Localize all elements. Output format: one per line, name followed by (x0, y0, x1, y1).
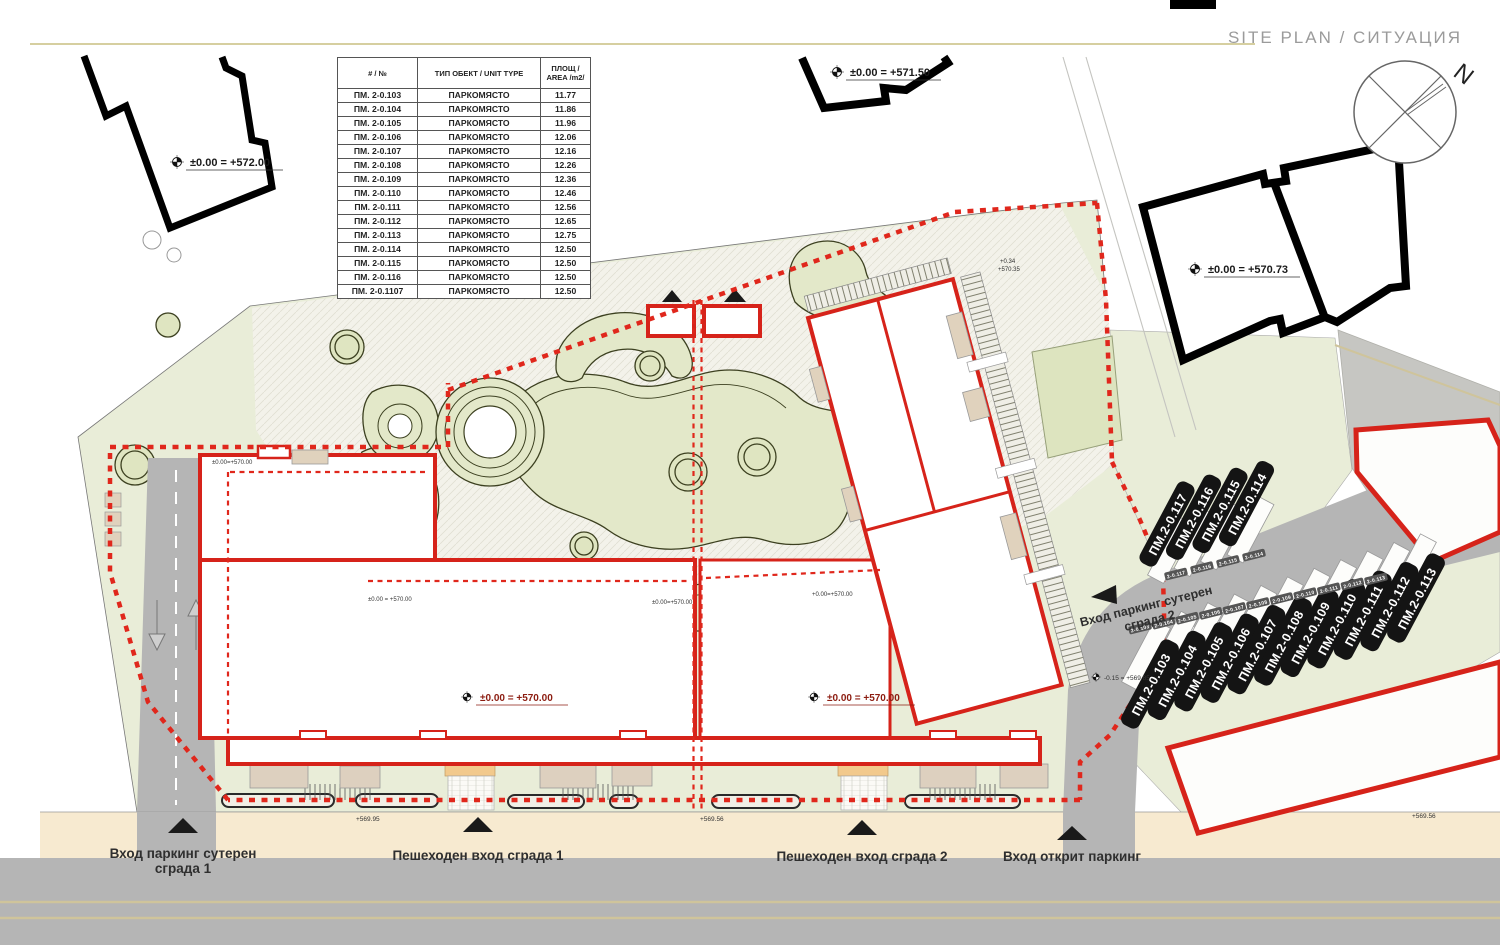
table-cell: ПАРКОМЯСТО (418, 173, 541, 187)
building-1-north-wing (200, 455, 435, 560)
ped2-label: Пешеходен вход сграда 2 (776, 849, 947, 864)
page-title: SITE PLAN / СИТУАЦИЯ (1228, 28, 1462, 48)
table-header-row: # / № ТИП ОБЕКТ / UNIT TYPE ПЛОЩ / AREA … (338, 58, 591, 89)
table-row: ПМ. 2-0.113ПАРКОМЯСТО12.75 (338, 229, 591, 243)
parking-area-table: # / № ТИП ОБЕКТ / UNIT TYPE ПЛОЩ / AREA … (337, 57, 591, 299)
garage1-label-line1: Вход паркинг сутерен (110, 846, 257, 861)
table-row: ПМ. 2-0.112ПАРКОМЯСТО12.65 (338, 215, 591, 229)
table-cell: 12.50 (541, 257, 591, 271)
elevation-b2-west: +0.00=+570.00 (812, 592, 853, 598)
title-rule (30, 43, 1255, 45)
table-row: ПМ. 2-0.110ПАРКОМЯСТО12.46 (338, 187, 591, 201)
crosswalk-2 (841, 776, 887, 810)
existing-building-top-edge (1170, 0, 1216, 9)
table-cell: ПАРКОМЯСТО (418, 187, 541, 201)
table-cell: 12.50 (541, 271, 591, 285)
table-cell: ПМ. 2-0.112 (338, 215, 418, 229)
table-cell: ПМ. 2-0.115 (338, 257, 418, 271)
table-cell: 12.75 (541, 229, 591, 243)
col-header-type: ТИП ОБЕКТ / UNIT TYPE (418, 58, 541, 89)
table-cell: ПМ. 2-0.111 (338, 201, 418, 215)
table-row: ПМ. 2-0.106ПАРКОМЯСТО12.06 (338, 131, 591, 145)
elevation-openlot: -0.15 = +569.85 (1104, 675, 1150, 682)
table-cell: 12.46 (541, 187, 591, 201)
table-cell: ПМ. 2-0.104 (338, 103, 418, 117)
table-row: ПМ. 2-0.103ПАРКОМЯСТО11.77 (338, 89, 591, 103)
table-cell: 11.77 (541, 89, 591, 103)
site-plan-drawing: ПМ.2-0.103ПМ.2-0.104ПМ.2-0.105ПМ.2-0.106… (0, 0, 1500, 945)
elevation-p034: +0.34 (1000, 259, 1016, 265)
table-cell: ПАРКОМЯСТО (418, 201, 541, 215)
table-cell: ПАРКОМЯСТО (418, 131, 541, 145)
table-cell: ПАРКОМЯСТО (418, 229, 541, 243)
table-cell: ПМ. 2-0.108 (338, 159, 418, 173)
table-cell: ПАРКОМЯСТО (418, 271, 541, 285)
table-cell: ПМ. 2-0.113 (338, 229, 418, 243)
table-cell: ПАРКОМЯСТО (418, 145, 541, 159)
table-cell: ПАРКОМЯСТО (418, 243, 541, 257)
core-terrace (292, 450, 328, 464)
table-cell: 12.26 (541, 159, 591, 173)
parking-table-body: ПМ. 2-0.103ПАРКОМЯСТО11.77ПМ. 2-0.104ПАР… (338, 89, 591, 299)
table-cell: ПМ. 2-0.116 (338, 271, 418, 285)
courtyard-2-block (700, 560, 890, 738)
elevation-57073: ±0.00 = +570.73 (1208, 264, 1288, 276)
table-cell: ПМ. 2-0.106 (338, 131, 418, 145)
corridor-head-west (648, 306, 694, 336)
elevation-b1-mid: ±0.00=+570.00 (652, 600, 693, 606)
table-row: ПМ. 2-0.108ПАРКОМЯСТО12.26 (338, 159, 591, 173)
table-cell: ПМ. 2-0.109 (338, 173, 418, 187)
elevation-court2: ±0.00 = +570.00 (827, 693, 900, 704)
table-cell: 12.50 (541, 243, 591, 257)
table-row: ПМ. 2-0.105ПАРКОМЯСТО11.96 (338, 117, 591, 131)
table-cell: ПМ. 2-0.103 (338, 89, 418, 103)
elevation-5715: ±0.00 = +571.50 (850, 67, 930, 79)
south-wing (228, 738, 1040, 764)
corridor-head-east (704, 306, 760, 336)
table-cell: ПАРКОМЯСТО (418, 257, 541, 271)
table-cell: ПАРКОМЯСТО (418, 285, 541, 299)
table-cell: ПМ. 2-0.1107 (338, 285, 418, 299)
site-plan-canvas: ПМ.2-0.103ПМ.2-0.104ПМ.2-0.105ПМ.2-0.106… (0, 0, 1500, 945)
table-cell: ПМ. 2-0.110 (338, 187, 418, 201)
table-row: ПМ. 2-0.115ПАРКОМЯСТО12.50 (338, 257, 591, 271)
garden-spiral-inner (388, 414, 412, 438)
table-cell: 12.65 (541, 215, 591, 229)
elevation-b1-corner: ±0.00=+570.00 (212, 460, 253, 466)
table-cell: ПАРКОМЯСТО (418, 103, 541, 117)
table-cell: 12.50 (541, 285, 591, 299)
table-cell: ПАРКОМЯСТО (418, 215, 541, 229)
table-row: ПМ. 2-0.107ПАРКОМЯСТО12.16 (338, 145, 591, 159)
elevation-572: ±0.00 = +572.00 (190, 157, 270, 169)
table-cell: 11.96 (541, 117, 591, 131)
west-terrace-pavers (105, 493, 121, 546)
table-cell: ПАРКОМЯСТО (418, 159, 541, 173)
open-parking-label: Вход открит паркинг (1003, 849, 1141, 864)
sidewalk (40, 812, 1500, 858)
elevation-57035: +570.35 (998, 267, 1021, 273)
north-letter: N (1448, 58, 1478, 90)
table-row: ПМ. 2-0.109ПАРКОМЯСТО12.36 (338, 173, 591, 187)
table-cell: ПМ. 2-0.107 (338, 145, 418, 159)
table-row: ПМ. 2-0.1107ПАРКОМЯСТО12.50 (338, 285, 591, 299)
table-row: ПМ. 2-0.114ПАРКОМЯСТО12.50 (338, 243, 591, 257)
garage1-label-line2: сграда 1 (155, 861, 212, 876)
table-cell: 12.56 (541, 201, 591, 215)
crosswalk-1 (448, 776, 494, 810)
table-cell: 11.86 (541, 103, 591, 117)
col-header-number: # / № (338, 58, 418, 89)
table-cell: 12.36 (541, 173, 591, 187)
table-cell: 12.16 (541, 145, 591, 159)
elevation-court1: ±0.00 = +570.00 (480, 693, 553, 704)
compass: N (1354, 58, 1479, 163)
elevation-sw3: +569.56 (1412, 813, 1436, 820)
table-cell: ПАРКОМЯСТО (418, 117, 541, 131)
existing-trees-offsite (143, 231, 181, 262)
table-cell: ПМ. 2-0.105 (338, 117, 418, 131)
elevation-sw1: +569.95 (356, 816, 380, 823)
ped1-label: Пешеходен вход сграда 1 (392, 848, 564, 863)
table-cell: ПАРКОМЯСТО (418, 89, 541, 103)
existing-building-northwest (84, 56, 272, 228)
existing-building-east (1143, 144, 1406, 360)
building-1-courtyard-block (200, 560, 695, 738)
table-cell: 12.06 (541, 131, 591, 145)
elevation-b1-south: ±0.00 = +570.00 (368, 597, 412, 603)
table-row: ПМ. 2-0.116ПАРКОМЯСТО12.50 (338, 271, 591, 285)
table-cell: ПМ. 2-0.114 (338, 243, 418, 257)
col-header-area: ПЛОЩ / AREA /m2/ (541, 58, 591, 89)
elevation-sw2: +569.56 (700, 816, 724, 823)
hedges (222, 794, 1300, 808)
table-row: ПМ. 2-0.111ПАРКОМЯСТО12.56 (338, 201, 591, 215)
existing-building-north (802, 57, 948, 108)
table-row: ПМ. 2-0.104ПАРКОМЯСТО11.86 (338, 103, 591, 117)
